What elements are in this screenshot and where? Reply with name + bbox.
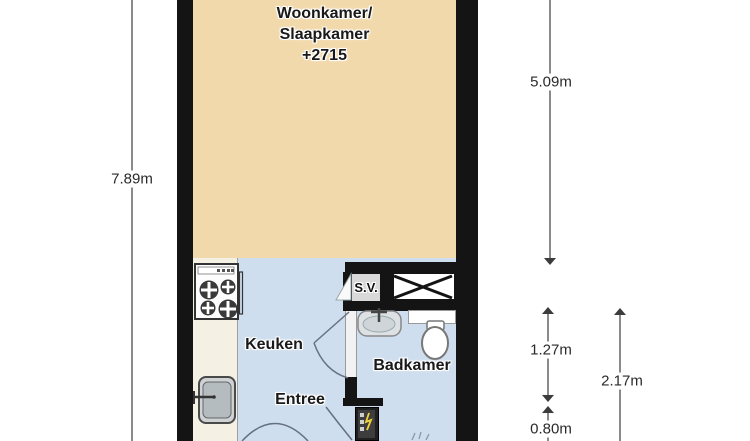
outer-wall-right — [456, 0, 478, 441]
bathroom-door-opening — [345, 311, 357, 377]
room-label-keuken: Keuken — [245, 336, 303, 354]
dimension-label-7-89m: 7.89m — [108, 171, 156, 188]
dimension-label-1-27m: 1.27m — [527, 342, 575, 359]
shaft-crossed-box — [390, 270, 458, 303]
dimension-label-2-17m: 2.17m — [598, 373, 646, 390]
shaft-label: S.V. — [354, 280, 377, 295]
ventilation-shaft-box: S.V. — [350, 272, 382, 303]
kitchen-counter — [193, 258, 238, 441]
shaft-divider-wall — [382, 272, 390, 303]
dimension-arrows — [542, 258, 626, 413]
meter-cupboard-top-wall — [343, 398, 383, 406]
room-label-woonkamer: Woonkamer/ Slaapkamer +2715 — [193, 3, 456, 66]
room-label-entree: Entree — [275, 391, 325, 409]
room-label-badkamer: Badkamer — [373, 357, 450, 375]
bathroom-shelf — [408, 310, 456, 324]
room-label-height-code: +2715 — [193, 45, 456, 66]
floor-plan: S.V. — [0, 0, 750, 441]
meter-cupboard — [355, 407, 379, 441]
room-label-woonkamer-line2: Slaapkamer — [193, 24, 456, 45]
outer-wall-left — [177, 0, 193, 441]
dimension-label-5-09m: 5.09m — [527, 74, 575, 91]
dimension-label-0-80m: 0.80m — [527, 421, 575, 438]
room-label-woonkamer-line1: Woonkamer/ — [193, 3, 456, 24]
bathroom-left-wall-segment — [345, 377, 357, 398]
